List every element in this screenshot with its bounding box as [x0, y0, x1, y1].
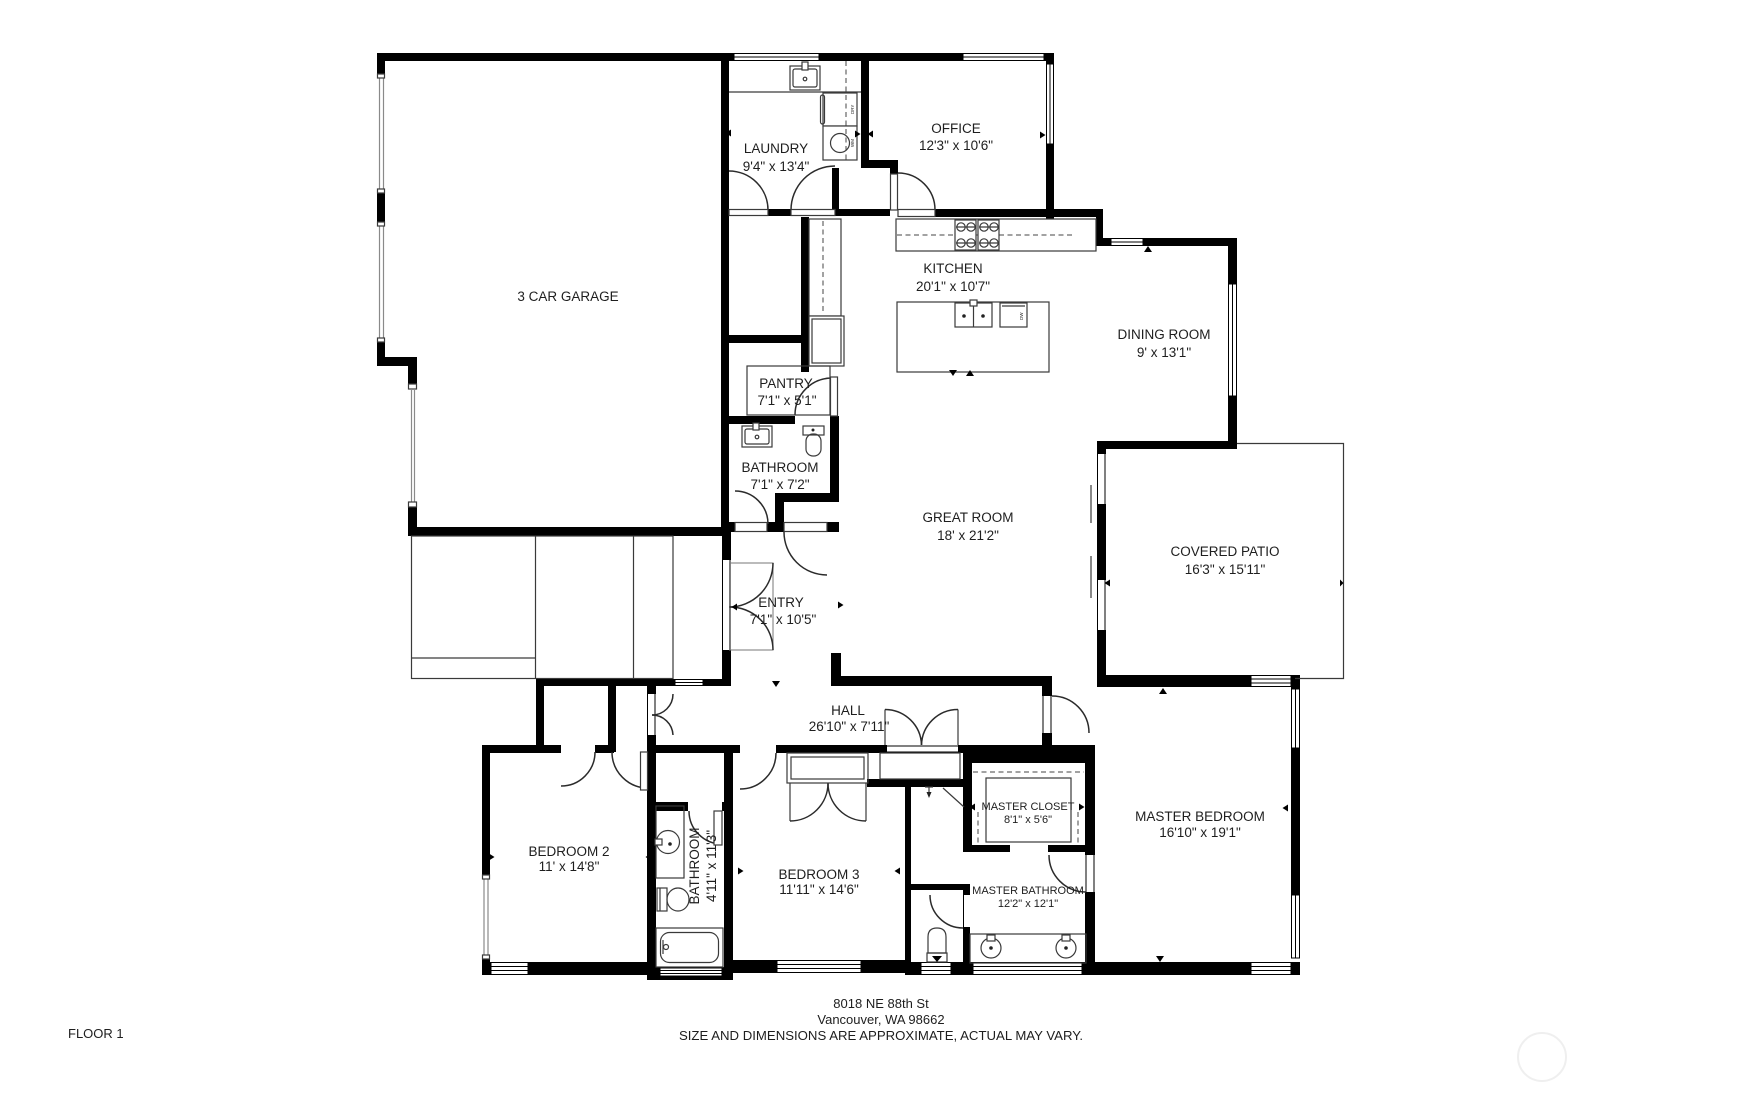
svg-text:Vancouver, WA 98662: Vancouver, WA 98662	[817, 1012, 944, 1027]
svg-text:8'1" x 5'6": 8'1" x 5'6"	[1004, 814, 1052, 826]
svg-text:7'1" x 5'1": 7'1" x 5'1"	[757, 393, 816, 408]
svg-text:16'3" x 15'11": 16'3" x 15'11"	[1185, 562, 1266, 577]
svg-text:MASTER BEDROOM: MASTER BEDROOM	[1135, 809, 1265, 824]
svg-text:12'2" x 12'1": 12'2" x 12'1"	[998, 898, 1058, 910]
svg-text:9' x 13'1": 9' x 13'1"	[1137, 345, 1191, 360]
svg-text:SIZE AND DIMENSIONS ARE APPROX: SIZE AND DIMENSIONS ARE APPROXIMATE, ACT…	[679, 1028, 1083, 1043]
svg-text:16'10" x 19'1": 16'10" x 19'1"	[1159, 825, 1241, 840]
svg-text:11'11" x 14'6": 11'11" x 14'6"	[779, 882, 859, 897]
svg-text:4'11" x 11'3": 4'11" x 11'3"	[704, 830, 719, 902]
svg-text:WM: WM	[850, 139, 855, 147]
svg-text:FLOOR 1: FLOOR 1	[68, 1026, 124, 1041]
svg-text:PANTRY: PANTRY	[759, 376, 813, 391]
svg-text:12'3" x 10'6": 12'3" x 10'6"	[919, 138, 993, 153]
svg-text:BATHROOM: BATHROOM	[687, 828, 702, 905]
svg-text:KITCHEN: KITCHEN	[923, 261, 982, 276]
svg-text:8018 NE 88th St: 8018 NE 88th St	[833, 996, 929, 1011]
svg-text:BEDROOM 3: BEDROOM 3	[778, 867, 859, 882]
svg-text:BATHROOM: BATHROOM	[742, 460, 819, 475]
svg-text:11' x 14'8": 11' x 14'8"	[539, 859, 600, 874]
svg-text:3 CAR GARAGE: 3 CAR GARAGE	[517, 289, 618, 304]
svg-text:20'1" x 10'7": 20'1" x 10'7"	[916, 279, 990, 294]
svg-text:COVERED PATIO: COVERED PATIO	[1170, 544, 1279, 559]
svg-text:9'4" x 13'4": 9'4" x 13'4"	[743, 159, 810, 174]
svg-text:DW: DW	[1019, 312, 1024, 320]
svg-text:BEDROOM 2: BEDROOM 2	[528, 844, 609, 859]
svg-text:26'10" x 7'11": 26'10" x 7'11"	[809, 719, 890, 734]
svg-text:18' x 21'2": 18' x 21'2"	[937, 528, 999, 543]
svg-text:7'1" x 7'2": 7'1" x 7'2"	[750, 477, 809, 492]
svg-text:7'1" x 10'5": 7'1" x 10'5"	[750, 612, 817, 627]
svg-text:HALL: HALL	[831, 703, 865, 718]
svg-text:LAUNDRY: LAUNDRY	[744, 141, 808, 156]
svg-text:MASTER CLOSET: MASTER CLOSET	[982, 801, 1075, 813]
svg-text:DRY: DRY	[850, 105, 855, 114]
svg-text:GREAT ROOM: GREAT ROOM	[922, 510, 1013, 525]
svg-text:ENTRY: ENTRY	[758, 595, 804, 610]
svg-text:MASTER BATHROOM: MASTER BATHROOM	[972, 885, 1084, 897]
svg-text:DINING ROOM: DINING ROOM	[1118, 327, 1211, 342]
svg-text:OFFICE: OFFICE	[931, 121, 981, 136]
